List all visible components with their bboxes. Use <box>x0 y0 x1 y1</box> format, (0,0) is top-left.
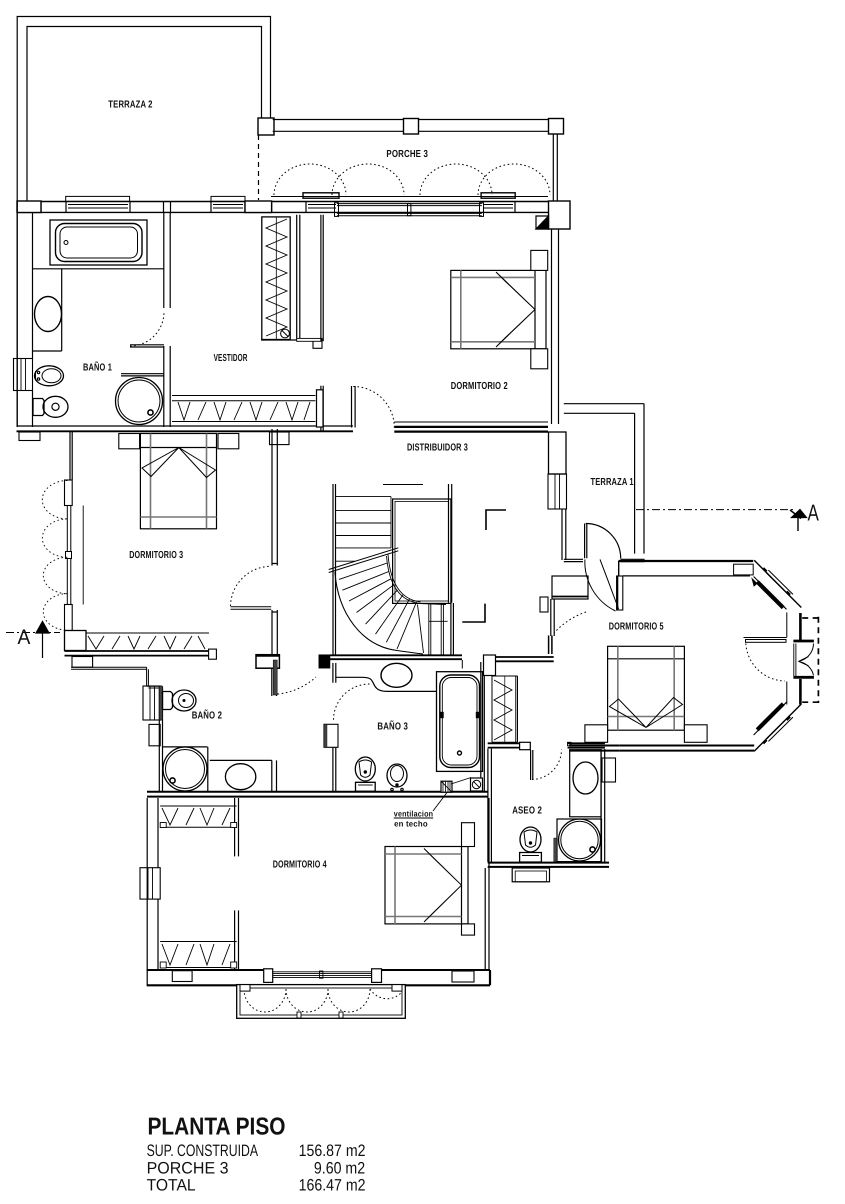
svg-text:166.47 m2: 166.47 m2 <box>299 1176 366 1195</box>
svg-text:BAÑO 1: BAÑO 1 <box>83 360 112 373</box>
svg-text:DORMITORIO 4: DORMITORIO 4 <box>273 859 327 870</box>
svg-text:BAÑO 3: BAÑO 3 <box>377 720 408 733</box>
svg-text:en techo: en techo <box>394 819 428 828</box>
svg-text:DORMITORIO 3: DORMITORIO 3 <box>129 550 183 561</box>
svg-text:PORCHE 3: PORCHE 3 <box>147 1158 229 1177</box>
svg-text:A: A <box>18 626 31 649</box>
svg-text:SUP. CONSTRUIDA: SUP. CONSTRUIDA <box>147 1141 259 1160</box>
svg-text:9.60 m2: 9.60 m2 <box>314 1158 365 1177</box>
svg-text:156.87 m2: 156.87 m2 <box>299 1141 366 1160</box>
svg-text:TERRAZA 1: TERRAZA 1 <box>591 477 634 488</box>
svg-text:PORCHE 3: PORCHE 3 <box>386 149 428 160</box>
svg-text:TOTAL: TOTAL <box>147 1176 196 1195</box>
svg-text:ventilacion: ventilacion <box>394 809 433 818</box>
svg-text:DORMITORIO 2: DORMITORIO 2 <box>451 381 508 392</box>
svg-text:PLANTA PISO: PLANTA PISO <box>148 1114 286 1141</box>
svg-text:ASEO 2: ASEO 2 <box>512 805 542 816</box>
svg-text:DISTRIBUIDOR 3: DISTRIBUIDOR 3 <box>407 443 468 454</box>
svg-text:A: A <box>808 500 820 526</box>
svg-text:TERRAZA 2: TERRAZA 2 <box>108 100 152 111</box>
svg-text:VESTIDOR: VESTIDOR <box>214 353 248 364</box>
svg-text:DORMITORIO 5: DORMITORIO 5 <box>609 622 664 633</box>
svg-text:BAÑO 2: BAÑO 2 <box>192 709 222 722</box>
